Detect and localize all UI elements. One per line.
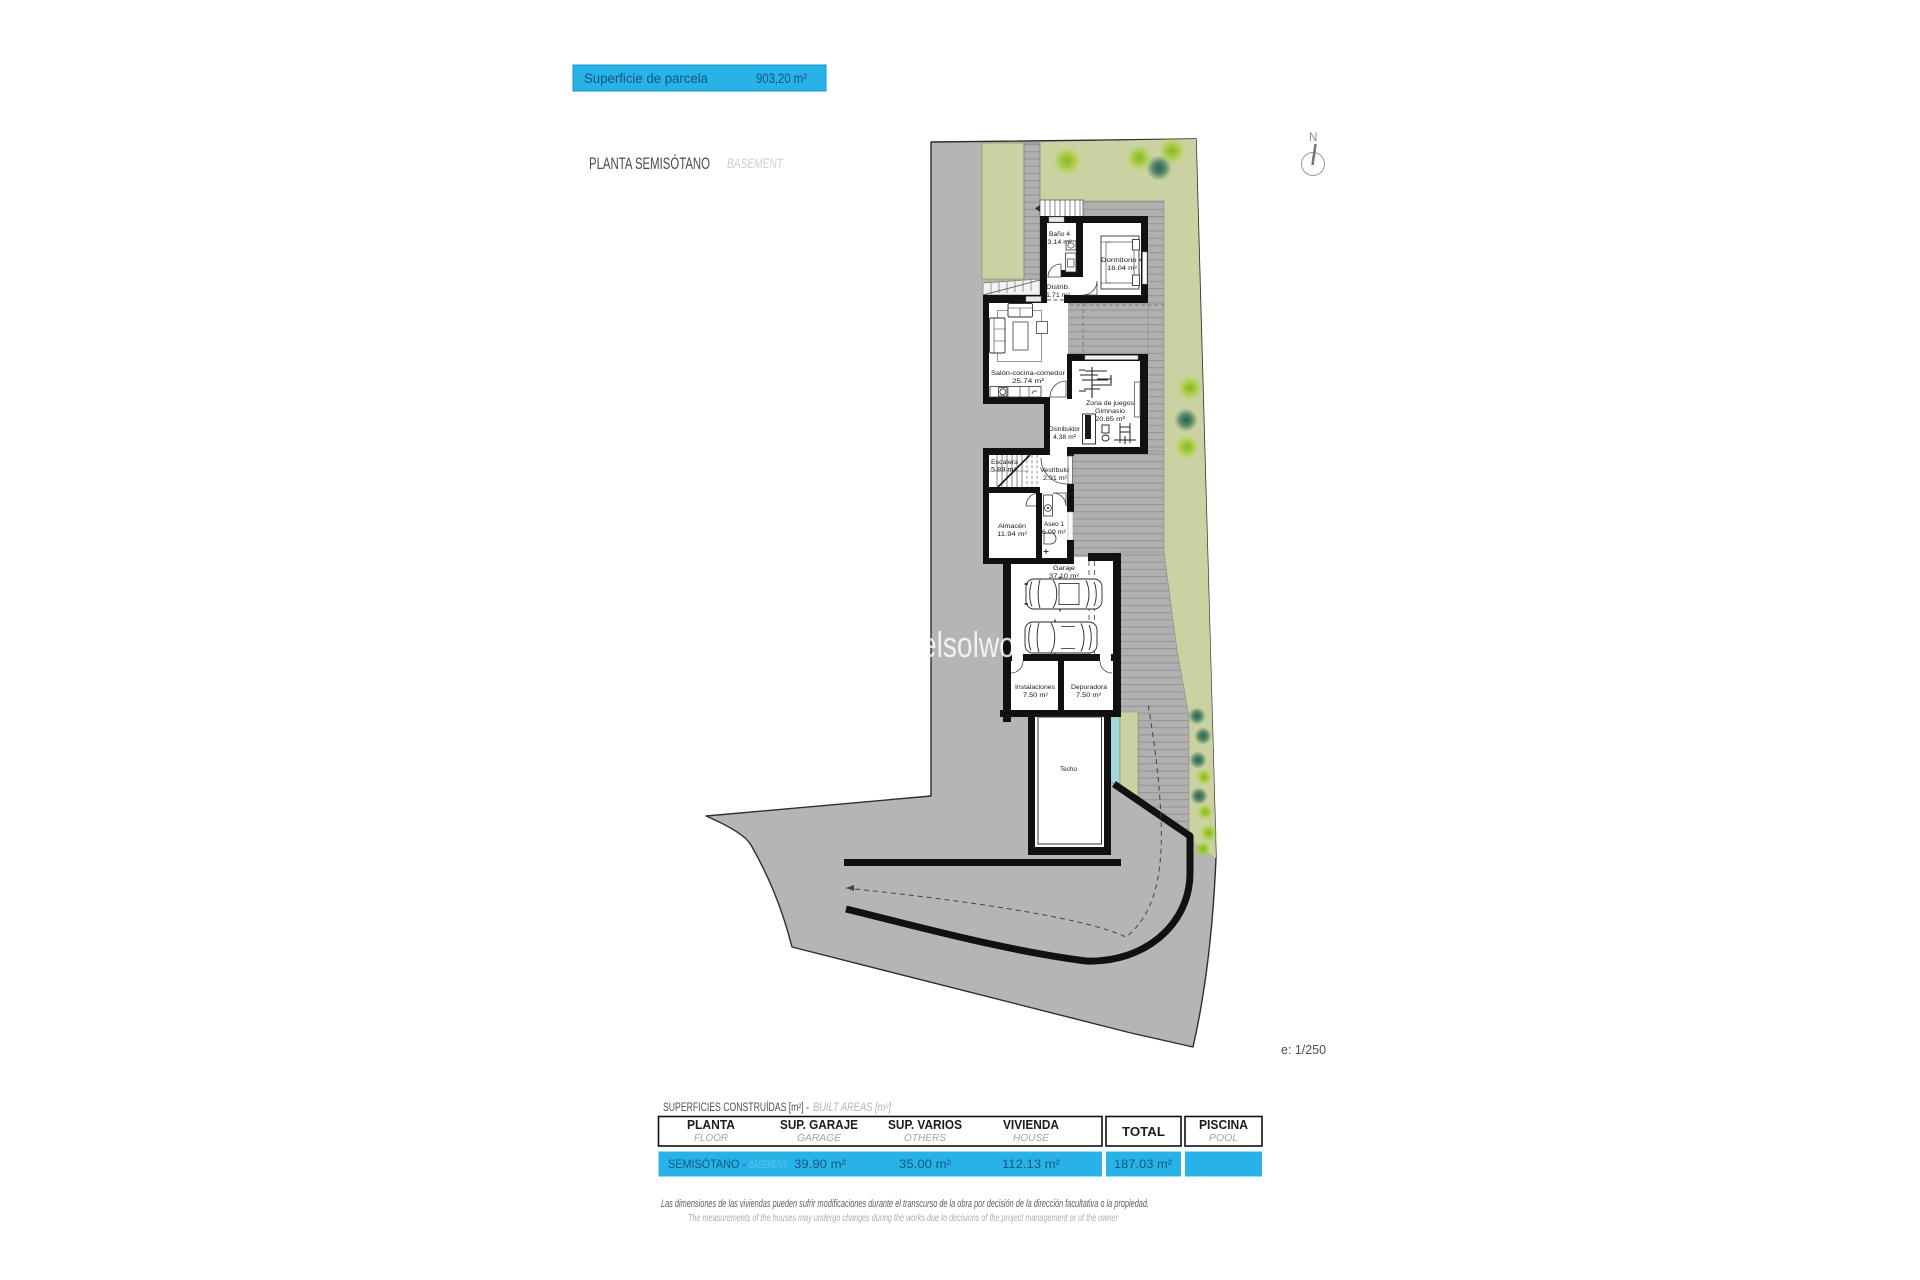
svg-text:SUP. VARIOS: SUP. VARIOS [888, 1118, 962, 1132]
svg-text:11.94 m²: 11.94 m² [997, 531, 1028, 538]
svg-text:4.38 m²: 4.38 m² [1053, 434, 1077, 441]
svg-text:20.85 m²: 20.85 m² [1095, 416, 1126, 423]
svg-text:Salón-cocina-comedor: Salón-cocina-comedor [991, 370, 1066, 377]
svg-text:187.03 m²: 187.03 m² [1114, 1157, 1172, 1171]
svg-text:7.50 m²: 7.50 m² [1023, 692, 1049, 699]
svg-text:BUILT AREAS [m²]: BUILT AREAS [m²] [813, 1102, 892, 1114]
svg-text:Superficie de parcela: Superficie de parcela [584, 71, 708, 86]
svg-text:SUPERFICIES CONSTRUÍDAS [m²] -: SUPERFICIES CONSTRUÍDAS [m²] - [663, 1101, 809, 1114]
svg-text:TOTAL: TOTAL [1122, 1125, 1165, 1139]
svg-text:2.91 m²: 2.91 m² [1043, 475, 1068, 482]
svg-text:SEMISÓTANO -: SEMISÓTANO - [668, 1156, 746, 1171]
svg-text:Garaje: Garaje [1053, 565, 1075, 572]
svg-text:The measurements of the houses: The measurements of the houses may under… [688, 1212, 1118, 1224]
svg-text:Las dimensiones de las viviend: Las dimensiones de las viviendas pueden … [661, 1198, 1149, 1210]
svg-text:112.13 m²: 112.13 m² [1002, 1157, 1060, 1171]
svg-text:Distribuidor: Distribuidor [1049, 426, 1081, 433]
svg-text:7.50 m²: 7.50 m² [1076, 692, 1102, 699]
svg-text:Instalaciones: Instalaciones [1015, 684, 1056, 691]
svg-text:39.90 m²: 39.90 m² [794, 1157, 846, 1171]
svg-text:Gimnasio: Gimnasio [1095, 408, 1125, 415]
svg-text:FLOOR: FLOOR [694, 1133, 728, 1144]
svg-text:PLANTA SEMISÓTANO: PLANTA SEMISÓTANO [589, 154, 710, 173]
svg-text:5.89 m²: 5.89 m² [991, 467, 1016, 474]
svg-text:Techo: Techo [1060, 766, 1078, 773]
svg-text:e: 1/250: e: 1/250 [1281, 1042, 1326, 1057]
svg-text:HOUSE: HOUSE [1013, 1133, 1049, 1144]
svg-text:Dormitorio 4: Dormitorio 4 [1101, 257, 1143, 264]
svg-text:PLANTA: PLANTA [687, 1118, 735, 1132]
svg-text:1.71 m²: 1.71 m² [1046, 292, 1071, 299]
svg-text:PISCINA: PISCINA [1199, 1118, 1248, 1132]
svg-text:25.74 m²: 25.74 m² [1012, 378, 1045, 385]
svg-text:Distrib.: Distrib. [1046, 284, 1070, 291]
svg-text:Baño 4: Baño 4 [1049, 231, 1070, 238]
svg-text:Aseo 1: Aseo 1 [1044, 521, 1064, 528]
svg-text:6.09 m²: 6.09 m² [1042, 529, 1067, 536]
svg-text:Depuradora: Depuradora [1071, 684, 1107, 691]
svg-text:SUP. GARAJE: SUP. GARAJE [780, 1118, 858, 1132]
svg-text:35.00 m²: 35.00 m² [899, 1157, 951, 1171]
svg-text:Escalera: Escalera [991, 459, 1019, 466]
svg-text:VIVIENDA: VIVIENDA [1003, 1118, 1059, 1132]
svg-text:Vestíbulo: Vestíbulo [1040, 467, 1069, 474]
svg-text:OTHERS: OTHERS [904, 1133, 946, 1144]
svg-text:BASEMENT: BASEMENT [727, 156, 784, 171]
svg-text:Almacén: Almacén [998, 523, 1026, 530]
svg-text:POOL: POOL [1209, 1133, 1238, 1144]
svg-text:37.10 m²: 37.10 m² [1049, 573, 1080, 580]
svg-text:3.14 m²: 3.14 m² [1048, 239, 1073, 246]
svg-text:903,20 m²: 903,20 m² [756, 71, 807, 86]
svg-text:Zona de juegos: Zona de juegos [1086, 400, 1135, 407]
svg-text:GARAGE: GARAGE [797, 1133, 841, 1144]
svg-text:16.04 m²: 16.04 m² [1107, 265, 1138, 272]
svg-text:N: N [1309, 132, 1317, 144]
svg-text:BASEMENT: BASEMENT [749, 1159, 788, 1171]
